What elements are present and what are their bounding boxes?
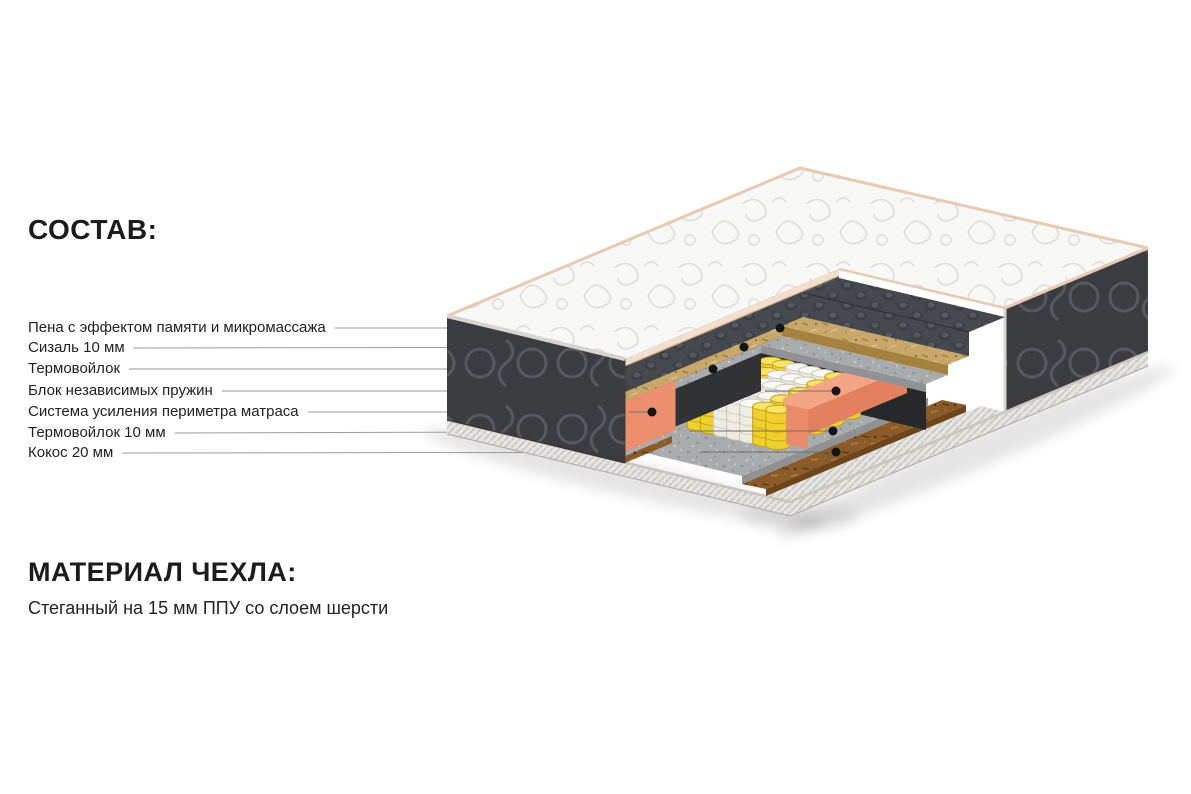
mattress-cutaway-illustration xyxy=(0,0,1191,794)
layer-dot-sisal xyxy=(740,343,749,352)
layer-dot-memory-foam xyxy=(776,324,785,333)
layer-dot-coconut-coir xyxy=(832,448,841,457)
layer-dot-perimeter-foam xyxy=(648,408,657,417)
infographic-page: СОСТАВ: Пена с эффектом памяти и микрома… xyxy=(0,0,1191,794)
layer-dot-thermo-felt-10 xyxy=(829,427,838,436)
layer-dot-pocket-springs xyxy=(832,387,841,396)
layer-dot-thermo-felt xyxy=(709,365,718,374)
